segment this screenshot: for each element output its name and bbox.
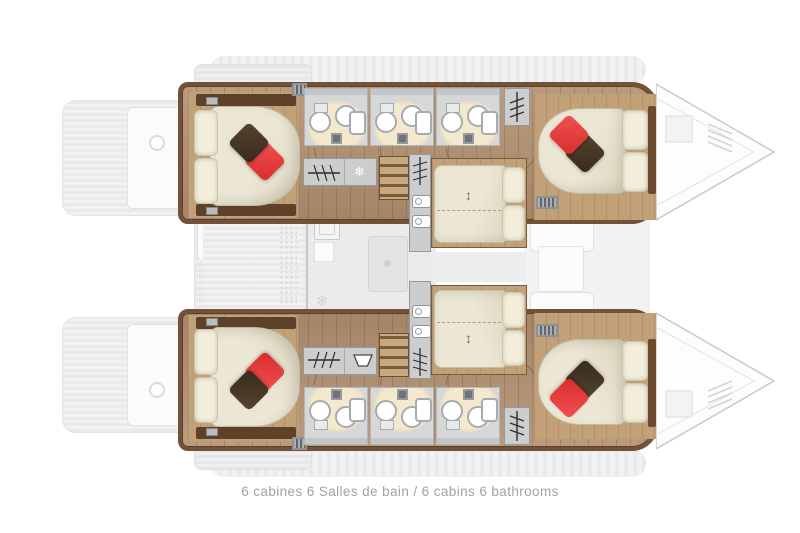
sink-icon [352, 353, 374, 368]
transom-seat [127, 324, 185, 426]
vanity-counter [305, 89, 368, 95]
toilet [309, 400, 331, 422]
hanging-locker [504, 407, 530, 445]
nacelle-cabin-bottom: ↕ [303, 281, 527, 379]
hanging-locker [504, 88, 530, 126]
pillow [622, 383, 648, 423]
bow-deck [656, 82, 778, 222]
pillow [194, 329, 218, 375]
winch-circle [149, 135, 165, 151]
pillow [622, 110, 648, 150]
toilet-tank [446, 420, 460, 430]
headboard-trim [648, 106, 656, 194]
berth-icon [412, 195, 431, 208]
toilet [375, 111, 397, 133]
bathroom-1 [304, 88, 368, 146]
catamaran-floorplan: ❄ ❄ [0, 0, 800, 533]
forward-cabin [534, 313, 656, 439]
berth-icon [412, 215, 431, 228]
galley-cabinets [303, 347, 377, 375]
locker-handle [206, 97, 218, 105]
vanity-counter [371, 89, 434, 95]
shower-seat [349, 111, 366, 135]
cabinet-divider [344, 348, 345, 374]
cabinet-strip [409, 154, 431, 252]
bathroom-4 [304, 387, 368, 445]
bow-deck [656, 311, 778, 451]
headboard-rail [196, 94, 296, 106]
pillow [622, 152, 648, 192]
companionway-grille [536, 196, 558, 209]
convertible-bed: ↕ [434, 290, 506, 368]
plan-caption: 6 cabines 6 Salles de bain / 6 cabins 6 … [0, 484, 800, 499]
aft-cabin [188, 315, 298, 441]
hanger-icon [508, 91, 526, 123]
pillow [502, 292, 525, 328]
toilet [441, 111, 463, 133]
shower-seat [481, 398, 498, 422]
companionway-grille [536, 324, 558, 337]
double-arrow-icon: ↕ [465, 331, 472, 345]
convertible-bed: ↕ [434, 165, 506, 243]
pillow [622, 341, 648, 381]
bathroom-5 [370, 387, 434, 445]
vanity-counter [437, 438, 500, 444]
hanger-icon [508, 410, 526, 442]
vanity-counter [371, 438, 434, 444]
shower-seat [349, 398, 366, 422]
berth-icon [412, 325, 431, 338]
shower-tray [463, 133, 474, 144]
shower-seat [481, 111, 498, 135]
cabinet-divider [344, 159, 345, 185]
hanger-icon [307, 164, 341, 182]
shower-tray [397, 133, 408, 144]
cabin-floor: ↕ [431, 158, 527, 248]
stern-platform [62, 100, 188, 216]
cabinet-strip [409, 281, 431, 379]
bed-split-line [437, 210, 501, 211]
companionway-steps [379, 156, 409, 200]
pillow [194, 377, 218, 423]
toilet-tank [314, 420, 328, 430]
shower-tray [463, 389, 474, 400]
bed-split-line [437, 322, 501, 323]
shower-seat [415, 111, 432, 135]
nacelle-cabin-top: ❄ ↕ [303, 154, 527, 252]
double-arrow-icon: ↕ [465, 188, 472, 202]
toilet-tank [314, 103, 328, 113]
galley-cabinets: ❄ [303, 158, 377, 186]
fridge-snowflake-icon: ❄ [354, 165, 365, 178]
toilet-tank [380, 420, 394, 430]
pillow [502, 330, 525, 366]
shower-tray [331, 133, 342, 144]
vanity-counter [305, 438, 368, 444]
bathroom-2 [370, 88, 434, 146]
bathroom-3 [436, 88, 500, 146]
berth-icon [412, 305, 431, 318]
locker-handle [206, 207, 218, 215]
companionway-steps [379, 333, 409, 377]
hanger-icon [412, 156, 428, 186]
headboard-trim [648, 339, 656, 427]
bathroom-6 [436, 387, 500, 445]
pillow [502, 205, 525, 241]
winch-circle [149, 382, 165, 398]
cabin-floor: ↕ [431, 285, 527, 375]
stern-platform [62, 317, 188, 433]
locker-handle [206, 318, 218, 326]
toilet [441, 400, 463, 422]
aft-cabin [188, 92, 298, 218]
hanger-icon [307, 351, 341, 369]
shower-tray [331, 389, 342, 400]
shower-tray [397, 389, 408, 400]
pillow [502, 167, 525, 203]
vanity-counter [437, 89, 500, 95]
toilet-tank [380, 103, 394, 113]
nacelle-passage-ghost [430, 252, 526, 282]
pillow [194, 158, 218, 204]
toilet [309, 111, 331, 133]
pillow [194, 110, 218, 156]
forward-cabin [534, 94, 656, 220]
locker-handle [206, 428, 218, 436]
shower-seat [415, 398, 432, 422]
toilet-tank [446, 103, 460, 113]
transom-seat [127, 107, 185, 209]
headboard-rail [196, 427, 296, 439]
toilet [375, 400, 397, 422]
hanger-icon [412, 347, 428, 377]
